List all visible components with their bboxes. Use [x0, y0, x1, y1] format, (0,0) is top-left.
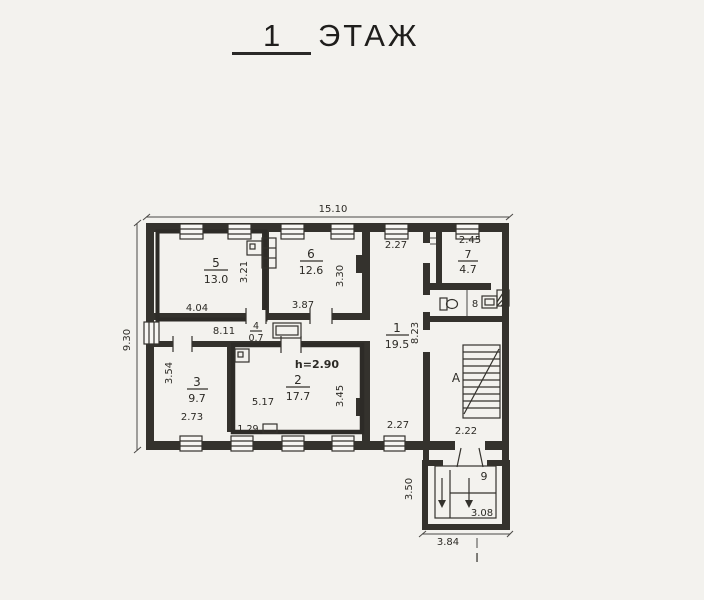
room5-depth: 3.21	[239, 261, 250, 283]
sink-icon	[482, 296, 497, 308]
hall-length: 8.11	[213, 326, 235, 337]
stair-hall-letter: А	[452, 371, 461, 385]
room2-depth: 3.45	[335, 385, 346, 407]
room7-width: 2.45	[459, 235, 481, 246]
corridor-number: 1	[393, 321, 401, 335]
room9-width: 3.08	[471, 508, 493, 519]
room2-number: 2	[294, 373, 302, 387]
staircase	[463, 345, 500, 418]
room6-area: 12.6	[299, 264, 324, 277]
toilet-icon	[440, 298, 458, 310]
corridor-width-top: 2.27	[385, 240, 407, 251]
room2-ceiling-height: h=2.90	[295, 358, 340, 371]
room5-width: 4.04	[186, 303, 208, 314]
room4-area: 0.7	[248, 333, 263, 344]
room9-number: 9	[481, 470, 488, 483]
vestibule-bottom-dimension	[419, 531, 513, 548]
room4-number: 4	[253, 321, 259, 332]
overall-dimension-left: 9.30	[122, 220, 141, 453]
stair-hall-width: 2.22	[455, 426, 477, 437]
vestibule-width: 3.84	[437, 537, 459, 548]
dim-building-width: 15.10	[319, 204, 348, 215]
room3-number: 3	[193, 375, 201, 389]
room3-width: 2.73	[181, 412, 203, 423]
floor-plan-drawing: 15.10 9.30	[0, 0, 704, 600]
dim-building-depth: 9.30	[122, 329, 133, 351]
room5-area: 13.0	[204, 273, 229, 286]
entrance-mark: I	[475, 551, 479, 565]
interior-walls	[153, 232, 509, 441]
overall-dimension-top: 15.10	[143, 204, 513, 220]
vestibule-walls	[422, 448, 510, 530]
corridor-width-bottom: 2.27	[387, 420, 409, 431]
room6-depth: 3.30	[335, 265, 346, 287]
room6-number: 6	[307, 247, 315, 261]
vestibule-depth: 3.50	[404, 478, 415, 500]
corridor-length: 8.23	[410, 322, 421, 344]
stove-room5-icon	[247, 241, 262, 255]
room3-area: 9.7	[188, 392, 206, 405]
room7-number: 7	[465, 248, 472, 261]
room7-area: 4.7	[459, 263, 477, 276]
window-left-wall	[144, 322, 159, 344]
closet-room4	[273, 323, 301, 338]
room5-number: 5	[212, 256, 220, 270]
room3-depth: 3.54	[164, 362, 175, 384]
room2-offset: 1.29	[237, 424, 258, 435]
corridor-area: 19.5	[385, 338, 410, 351]
stove-room2-icon	[235, 349, 249, 362]
room2-area: 17.7	[286, 390, 311, 403]
room8-number: 8	[472, 299, 478, 310]
floor-plan-page: 1 ЭТАЖ 15.10 9.30	[0, 0, 704, 600]
room6-width: 3.87	[292, 300, 314, 311]
room2-width: 5.17	[252, 397, 274, 408]
